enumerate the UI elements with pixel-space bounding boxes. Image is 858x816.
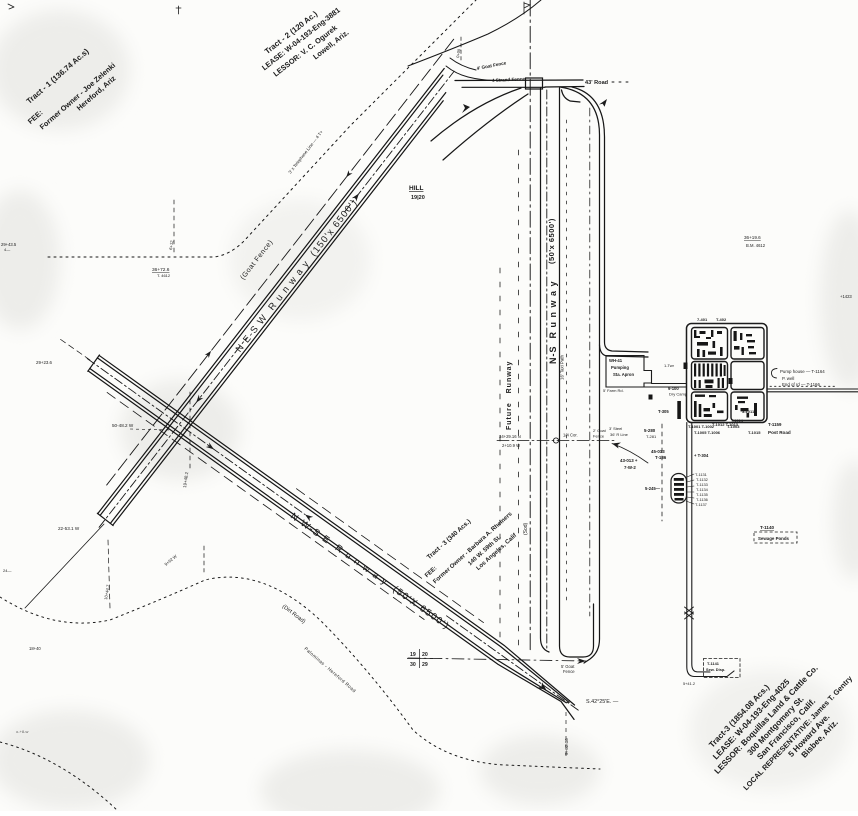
svg-text:4—: 4—: [4, 247, 10, 252]
svg-text:2+10.9 W: 2+10.9 W: [502, 443, 520, 448]
svg-text:29+23.6: 29+23.6: [36, 360, 53, 365]
svg-text:Sewage Ponds: Sewage Ponds: [758, 536, 790, 541]
svg-text:Post Road: Post Road: [768, 430, 791, 435]
svg-text:T-1137: T-1137: [695, 502, 707, 507]
svg-text:(50'x 6500'): (50'x 6500'): [547, 218, 556, 264]
svg-text:T-1005 T-1006: T-1005 T-1006: [694, 430, 721, 435]
svg-text:T-1141: T-1141: [707, 661, 720, 666]
svg-text:WH-41: WH-41: [609, 358, 623, 363]
svg-text:5' Farm Rd.: 5' Farm Rd.: [603, 388, 624, 393]
svg-text:1-Twr: 1-Twr: [664, 363, 675, 368]
svg-text:T-305: T-305: [658, 409, 669, 414]
svg-text:2' Goat: 2' Goat: [593, 428, 607, 433]
svg-text:5+41.2: 5+41.2: [683, 681, 695, 686]
svg-text:45-013: 45-013: [651, 449, 665, 454]
svg-text:18+40: 18+40: [29, 646, 41, 651]
svg-text:o-+8-w: o-+8-w: [16, 729, 28, 734]
svg-text:Dry Camp: Dry Camp: [669, 392, 688, 397]
svg-text:7-401: 7-401: [697, 317, 708, 322]
svg-text:34+29.16 N: 34+29.16 N: [499, 434, 521, 439]
svg-text:19: 19: [410, 652, 416, 658]
svg-text:N-S R u n w a y: N-S R u n w a y: [548, 280, 558, 364]
svg-text:T-1014: T-1014: [731, 419, 744, 423]
svg-text:Pump house — T-1164: Pump house — T-1164: [780, 369, 825, 374]
svg-text:Fence: Fence: [593, 434, 605, 439]
svg-text:5-280: 5-280: [644, 428, 656, 433]
svg-text:HILL: HILL: [409, 185, 423, 192]
svg-text:T-1001 T-1002: T-1001 T-1002: [688, 424, 715, 429]
svg-text:+1423: +1423: [840, 294, 852, 299]
svg-text:T-281: T-281: [646, 434, 657, 439]
svg-text:T-186: T-186: [655, 455, 667, 460]
svg-text:9+62.06: 9+62.06: [564, 738, 569, 755]
svg-text:9-100: 9-100: [668, 386, 679, 391]
svg-text:50-48.2 W: 50-48.2 W: [112, 423, 134, 428]
svg-text:T-1015: T-1015: [748, 430, 761, 435]
svg-text:20: 20: [422, 652, 428, 658]
svg-text:(Sod): (Sod): [523, 522, 529, 535]
svg-text:16' Taxi Path: 16' Taxi Path: [560, 355, 565, 380]
svg-text:Sta. Apron: Sta. Apron: [613, 372, 634, 377]
svg-text:36' R Line: 36' R Line: [610, 432, 629, 437]
svg-text:5-245—: 5-245—: [645, 486, 661, 491]
svg-text:T-1140: T-1140: [760, 525, 774, 530]
svg-text:30: 30: [410, 662, 416, 668]
svg-text:Fence: Fence: [563, 669, 575, 674]
svg-text:T-1159: T-1159: [768, 422, 782, 427]
svg-text:19|20: 19|20: [411, 195, 425, 201]
svg-text:Sew. Disp.: Sew. Disp.: [706, 667, 725, 672]
svg-text:T. 4612: T. 4612: [157, 273, 171, 278]
svg-text:29: 29: [422, 662, 428, 668]
svg-text:End of rd — T-1166: End of rd — T-1166: [782, 382, 820, 387]
svg-text:1/4 Cor.: 1/4 Cor.: [563, 433, 578, 438]
svg-text:3-1011: 3-1011: [742, 409, 755, 414]
svg-text:43' Road: 43' Road: [585, 80, 609, 86]
svg-text:B.M. 4612: B.M. 4612: [746, 243, 766, 248]
svg-text:43-013 +: 43-013 +: [620, 458, 638, 463]
svg-text:T-402: T-402: [716, 317, 727, 322]
svg-text:+ T-304: + T-304: [694, 453, 709, 458]
svg-text:3' Steel: 3' Steel: [609, 426, 622, 431]
svg-text:22-53.1 W: 22-53.1 W: [58, 526, 80, 531]
svg-text:Future Runway: Future Runway: [506, 361, 513, 430]
svg-text:36+19.6: 36+19.6: [744, 235, 761, 240]
svg-text:S.42°25'E. —: S.42°25'E. —: [586, 699, 619, 705]
svg-text:7-W-2: 7-W-2: [624, 465, 636, 470]
svg-text:Pumping: Pumping: [611, 365, 629, 370]
svg-text:24—: 24—: [3, 568, 11, 573]
svg-text:P. well: P. well: [782, 376, 794, 381]
